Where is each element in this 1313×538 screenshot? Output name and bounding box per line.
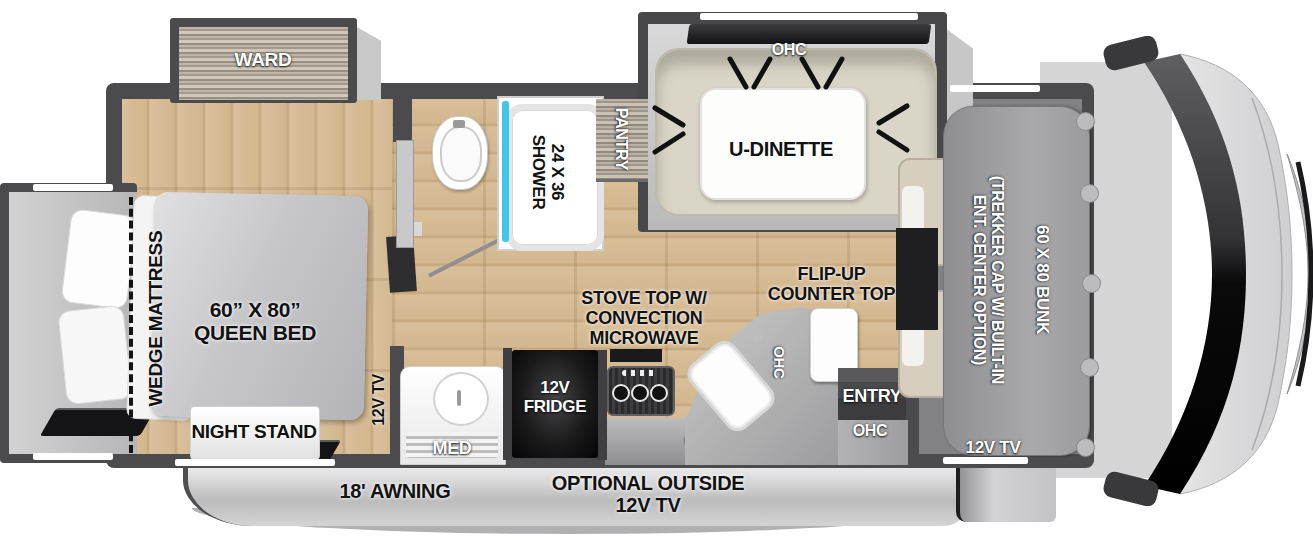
stove-label: STOVE TOP W/ CONVECTION MICROWAVE — [558, 288, 730, 348]
bunk-hinge-knob — [1082, 274, 1101, 293]
window-strip — [175, 459, 335, 466]
bunk-hinge-knob — [1080, 358, 1099, 377]
night-stand-label: NIGHT STAND — [191, 421, 317, 442]
pillow-bottom — [57, 305, 132, 405]
shower-glass — [502, 101, 509, 242]
outside-tv-label-line1: OPTIONAL OUTSIDE — [538, 472, 758, 494]
stove-burner — [631, 384, 649, 402]
cabover-bunk — [943, 106, 1090, 456]
fridge-label: 12V FRIDGE — [513, 378, 597, 416]
window-strip — [33, 184, 113, 191]
fridge-label-line2: FRIDGE — [513, 397, 597, 416]
bunk-hinge-knob — [1076, 112, 1095, 131]
bunk-option-label: (TREKKER CAP W/ BUILT-IN ENT. CENTER OPT… — [970, 100, 1006, 460]
med-label: MED — [420, 438, 484, 458]
window-strip — [700, 13, 918, 20]
fridge-wall-right — [597, 350, 607, 460]
bunk-option-line2: ENT. CENTER OPTION) — [970, 100, 988, 460]
stove-label-line3: MICROWAVE — [558, 328, 730, 348]
queen-bed-label-line1: 60” X 80” — [165, 298, 345, 322]
fridge-wall-left — [503, 348, 512, 460]
bunk-label: 60 X 80 BUNK — [1032, 180, 1051, 380]
outside-tv-label-line2: 12V TV — [538, 494, 758, 516]
toilet-flush — [453, 120, 465, 128]
stove-hood-strip — [610, 349, 662, 362]
wedge-mattress-line — [129, 197, 133, 453]
vanity-sink — [433, 372, 489, 426]
bedroom-tv-label: 12V TV — [370, 345, 388, 455]
bunk-option-line1: (TREKKER CAP W/ BUILT-IN — [988, 100, 1006, 460]
queen-bed-label-line2: QUEEN BED — [165, 321, 345, 345]
wedge-mattress-label: WEDGE MATTRESS — [145, 199, 166, 439]
front-tv-label: 12V TV — [958, 438, 1028, 457]
ent-center-panel — [896, 228, 938, 330]
stove-burner — [612, 384, 630, 402]
entry-ohc-label: OHC — [838, 422, 902, 440]
bath-wall-upper — [393, 96, 412, 142]
seatbelt-icon — [726, 56, 774, 92]
window-strip — [943, 457, 1028, 464]
bunk-hinge-knob — [1080, 184, 1099, 203]
fridge-label-line1: 12V — [513, 378, 597, 397]
shower-label-line2: SHOWER — [529, 112, 548, 232]
pantry-label: PANTRY — [612, 99, 630, 179]
ward-label: WARD — [203, 49, 323, 70]
seatbelt-icon — [874, 102, 910, 154]
stove-label-line2: CONVECTION — [558, 308, 730, 328]
bunk-hinge-knob — [1076, 438, 1095, 457]
seatbelt-icon — [798, 56, 846, 92]
shower-label: 24 X 36 SHOWER — [529, 112, 567, 232]
pillow-top — [61, 208, 138, 309]
seatbelt-icon — [652, 104, 688, 156]
rv-floorplan-diagram: 18' AWNING OPTIONAL OUTSIDE 12V TV WARD … — [0, 0, 1313, 538]
stove-knobs — [622, 370, 658, 376]
vanity-faucet — [457, 390, 461, 406]
counter-faucet — [752, 332, 762, 342]
flip-up-label: FLIP-UP COUNTER TOP — [744, 264, 919, 304]
ward-slideout-extrusion — [355, 26, 381, 100]
stove-burner — [650, 384, 668, 402]
flip-up-label-line2: COUNTER TOP — [744, 284, 919, 304]
window-strip — [33, 453, 113, 460]
stove-label-line1: STOVE TOP W/ — [558, 288, 730, 308]
awning-label: 18' AWNING — [300, 480, 490, 502]
toilet-bowl — [440, 126, 482, 182]
counter-ohc-label: OHC — [771, 332, 788, 392]
shower-label-line1: 24 X 36 — [548, 112, 567, 232]
bath-door-panel — [396, 140, 414, 248]
cab-entry-step — [956, 466, 1056, 522]
u-dinette-label: U-DINETTE — [701, 138, 861, 160]
flip-up-label-line1: FLIP-UP — [744, 264, 919, 284]
window-strip — [950, 85, 1040, 92]
cab-seat-passenger-headrest — [902, 186, 924, 234]
